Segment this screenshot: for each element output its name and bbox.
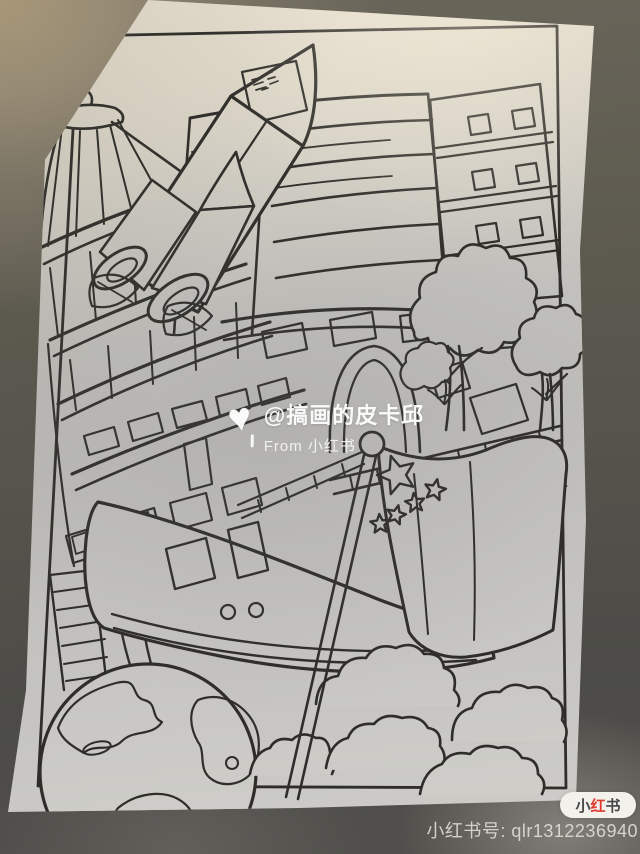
badge-char: 小 — [575, 795, 590, 816]
rocket — [87, 45, 316, 335]
xiaohongshu-badge: 小红书 — [560, 792, 636, 818]
paper-sheet — [0, 0, 640, 854]
account-id: 小红书号: qlr1312236940 — [426, 817, 638, 843]
photo-of-line-drawing: ♥ @搞画的皮卡邱 From 小红书 小红书 小红书号: qlr13122369… — [0, 0, 640, 854]
line-drawing — [0, 0, 640, 854]
badge-char: 书 — [606, 795, 621, 816]
badge-char-accent: 红 — [590, 795, 605, 816]
